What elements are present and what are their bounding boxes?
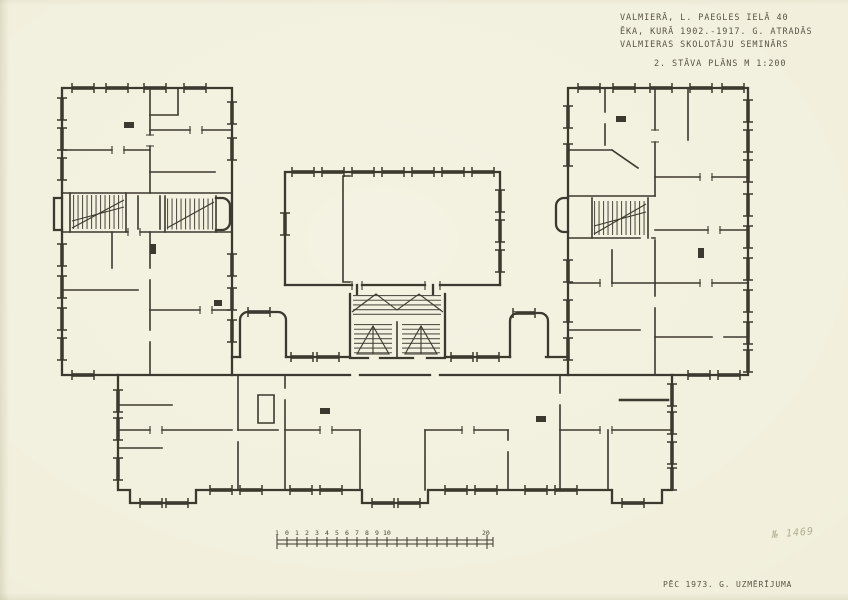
title-line-building: ĒKA, KURĀ 1902.-1917. G. ATRADĀS xyxy=(620,26,813,40)
title-line-address: VALMIERĀ, L. PAEGLES IELĀ 40 xyxy=(620,12,813,26)
scale-label: 7 xyxy=(355,529,359,537)
scale-label: 10 xyxy=(383,529,391,537)
scale-label: 1 xyxy=(295,529,299,537)
interior-walls xyxy=(62,88,748,490)
scale-label: 1 xyxy=(275,529,279,537)
stair-direction-lines xyxy=(72,200,646,354)
drawing-sheet: 1 0 1 2 3 4 5 6 7 8 9 10 20 VALMIERĀ, L.… xyxy=(0,0,848,600)
scale-label: 5 xyxy=(335,529,339,537)
stair-hatching xyxy=(73,212,646,354)
scale-bar: 1 0 1 2 3 4 5 6 7 8 9 10 20 xyxy=(275,529,493,549)
scale-label: 3 xyxy=(315,529,319,537)
floor-plan: 1 0 1 2 3 4 5 6 7 8 9 10 20 xyxy=(0,0,848,600)
survey-note: PĒC 1973. G. UZMĒRĪJUMA xyxy=(663,580,792,589)
scale-label: 6 xyxy=(345,529,349,537)
title-line-plan-scale: 2. STĀVA PLĀNS M 1:200 xyxy=(620,58,813,72)
scale-label: 8 xyxy=(365,529,369,537)
title-block: VALMIERĀ, L. PAEGLES IELĀ 40 ĒKA, KURĀ 1… xyxy=(620,12,813,71)
scale-label: 0 xyxy=(285,529,289,537)
title-line-institution: VALMIERAS SKOLOTĀJU SEMINĀRS xyxy=(620,39,813,53)
scale-label: 20 xyxy=(482,529,490,537)
scale-label: 9 xyxy=(375,529,379,537)
scale-label: 4 xyxy=(325,529,329,537)
scale-label: 2 xyxy=(305,529,309,537)
